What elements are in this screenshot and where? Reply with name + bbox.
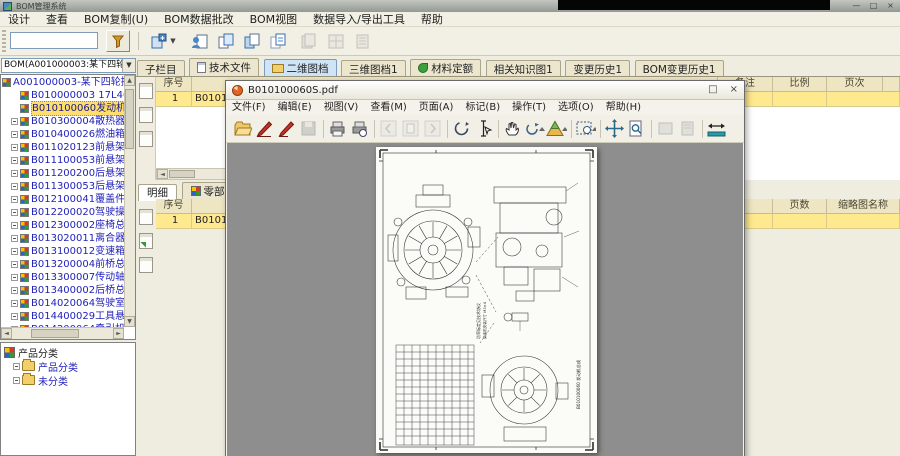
- drawing-sheet: 功率标定见技术协议 柴油机安装尺寸 M3×4 B010100060 发动机总成: [376, 147, 597, 453]
- tree-item[interactable]: B013020011离合器总成 1: [1, 232, 124, 245]
- close-button[interactable]: ×: [884, 1, 897, 11]
- tree-item[interactable]: B013300007传动轴总成 1: [1, 271, 124, 284]
- bom-icon: [20, 143, 29, 152]
- save-disabled-icon[interactable]: [298, 118, 319, 139]
- sign-pen-alt-icon[interactable]: [276, 118, 297, 139]
- tree-toggle-icon[interactable]: [11, 183, 18, 190]
- bom-select[interactable]: BOM(A001000003:某下四轮拖… ▼: [1, 58, 136, 73]
- bom-icon: [20, 286, 29, 295]
- tree-vertical-scrollbar[interactable]: ▲ ▼: [124, 75, 135, 327]
- tree-item[interactable]: B011020123前悬架 1: [1, 141, 124, 154]
- tab-label: 三维图档1: [349, 62, 398, 77]
- tree-toggle-icon[interactable]: [11, 157, 18, 164]
- rotate-90-icon[interactable]: [524, 118, 545, 139]
- pdf-menu-item[interactable]: 标记(B): [459, 100, 506, 115]
- tree-toggle-icon[interactable]: [11, 131, 18, 138]
- column-header: 比例: [773, 77, 827, 92]
- bom-icon: [20, 104, 29, 113]
- tree-toggle-icon[interactable]: [11, 248, 18, 255]
- doc-action-icon[interactable]: [139, 257, 153, 273]
- bom-select-value: BOM(A001000003:某下四轮拖…: [2, 59, 122, 72]
- category-grid-icon: [4, 347, 15, 358]
- menu-bar: 设计查看BOM复制(U)BOM数据批改BOM视图数据导入/导出工具帮助: [0, 12, 900, 27]
- tab-icon: [272, 64, 284, 73]
- copy-node-icon[interactable]: [188, 30, 212, 52]
- scroll-right-icon[interactable]: ►: [113, 328, 124, 339]
- tree-item[interactable]: B010100060发动机总成 1: [1, 102, 124, 115]
- tree-toggle-icon[interactable]: [11, 274, 18, 281]
- import-doc-icon[interactable]: [139, 233, 153, 249]
- redacted-strip: [558, 0, 830, 10]
- menu-item[interactable]: 设计: [0, 12, 38, 27]
- tree-item[interactable]: B012300002座椅总成 1: [1, 219, 124, 232]
- tree-toggle-icon[interactable]: [11, 196, 18, 203]
- tree-toggle-icon[interactable]: [11, 313, 18, 320]
- svg-text:柴油机安装尺寸 M3×4: 柴油机安装尺寸 M3×4: [482, 301, 487, 339]
- category-folder[interactable]: 未分类: [1, 373, 135, 387]
- column-header: 序号: [156, 77, 192, 92]
- tree-item[interactable]: B011200200后悬架 1: [1, 167, 124, 180]
- pdf-close-button[interactable]: ×: [730, 83, 738, 97]
- bom-icon: [20, 156, 29, 165]
- copy-pages-icon[interactable]: [240, 30, 264, 52]
- tree-toggle-icon[interactable]: [11, 170, 18, 177]
- tab-label: 明细: [147, 185, 168, 200]
- maximize-button[interactable]: □: [867, 1, 880, 11]
- scroll-left-icon[interactable]: ◄: [157, 169, 168, 179]
- print-preview-icon[interactable]: [349, 118, 370, 139]
- column-header: 序号: [156, 199, 192, 214]
- upper-table-hscrollbar[interactable]: ◄: [156, 168, 234, 180]
- tree-root[interactable]: A001000003-某下四轮拖拉机总成-(1: [1, 76, 124, 89]
- tab-label: 材料定额: [431, 61, 473, 76]
- bom-icon: [20, 247, 29, 256]
- tree-toggle-icon[interactable]: [11, 222, 18, 229]
- sign-pen-icon[interactable]: [254, 118, 275, 139]
- column-header: 页数: [773, 199, 827, 214]
- tab-label: 相关知识图1: [494, 62, 553, 77]
- pdf-app-icon: [232, 85, 243, 96]
- column-header: [883, 77, 900, 92]
- pdf-menu-item[interactable]: 操作(T): [506, 100, 552, 115]
- tab-label: 二维图档: [287, 61, 329, 76]
- tree-item[interactable]: B013100012变速箱总成 1: [1, 245, 124, 258]
- page-next-disabled-icon[interactable]: [422, 118, 443, 139]
- menu-item[interactable]: 数据导入/导出工具: [305, 12, 413, 27]
- filter-funnel-icon[interactable]: [106, 30, 130, 52]
- bom-icon: [20, 234, 29, 243]
- scroll-down-icon[interactable]: ▼: [124, 316, 135, 327]
- tree-toggle-icon[interactable]: [11, 209, 18, 216]
- chevron-down-icon[interactable]: ▼: [122, 59, 135, 72]
- bom-icon: [20, 312, 29, 321]
- zoom-preview-icon[interactable]: [626, 118, 647, 139]
- pdf-menu-item[interactable]: 文件(F): [226, 100, 272, 115]
- tree-item[interactable]: B010300004散热器总成 1: [1, 115, 124, 128]
- pdf-canvas[interactable]: 功率标定见技术协议 柴油机安装尺寸 M3×4 B010100060 发动机总成: [227, 143, 743, 456]
- tree-item[interactable]: B013400002后桥总成 1: [1, 284, 124, 297]
- main-toolbar: ▼: [0, 27, 900, 56]
- upper-action-strip: [136, 77, 156, 180]
- tree-horizontal-scrollbar[interactable]: ◄ ►: [1, 327, 124, 339]
- tab-icon: [418, 63, 428, 73]
- menu-item[interactable]: 帮助: [413, 12, 451, 27]
- tab-label: 变更历史1: [573, 62, 622, 77]
- column-header: 页次: [827, 77, 883, 92]
- tree-toggle-icon[interactable]: [11, 261, 18, 268]
- pdf-maximize-button[interactable]: □: [708, 83, 717, 97]
- hand-tool-icon[interactable]: [502, 118, 523, 139]
- paste-disabled-icon[interactable]: [296, 30, 320, 52]
- pdf-viewer-window: B010100060S.pdf □ × 文件(F)编辑(E)视图(V)查看(M)…: [225, 80, 745, 456]
- bom-new-dropdown-icon[interactable]: ▼: [146, 30, 180, 52]
- tab-icon: [197, 62, 206, 73]
- stamp-disabled-icon[interactable]: [655, 118, 676, 139]
- tree-item[interactable]: B013200004前桥总成 1: [1, 258, 124, 271]
- fit-width-icon[interactable]: [706, 118, 727, 139]
- scroll-up-icon[interactable]: ▲: [124, 75, 135, 86]
- lower-tab[interactable]: 明细: [138, 184, 177, 201]
- bom-icon: [20, 260, 29, 269]
- bom-icon: [20, 299, 29, 308]
- fit-page-icon[interactable]: [604, 118, 625, 139]
- pdf-menu-item[interactable]: 选项(O): [552, 100, 600, 115]
- tab-label: 子栏目: [145, 62, 177, 77]
- column-header: 缩略图名称: [827, 199, 900, 214]
- menu-item[interactable]: BOM视图: [242, 12, 306, 27]
- tree-toggle-icon[interactable]: [11, 287, 18, 294]
- tree-item[interactable]: B010400026燃油箱总成 1: [1, 128, 124, 141]
- bom-icon: [20, 91, 29, 100]
- main-tab[interactable]: 材料定额: [410, 59, 481, 77]
- folder-icon: [22, 375, 35, 385]
- engineering-drawing: 功率标定见技术协议 柴油机安装尺寸 M3×4 B010100060 发动机总成: [376, 147, 597, 453]
- pdf-menu-item[interactable]: 编辑(E): [272, 100, 318, 115]
- main-tab[interactable]: 技术文件: [189, 58, 259, 76]
- toolbar-grip[interactable]: [2, 30, 6, 52]
- pdf-menu-item[interactable]: 视图(V): [318, 100, 365, 115]
- doc-action-icon[interactable]: [139, 83, 153, 99]
- pdf-title: B010100060S.pdf: [248, 85, 338, 96]
- tree-toggle-icon[interactable]: [11, 235, 18, 242]
- page-prev-disabled-icon[interactable]: [378, 118, 399, 139]
- bom-icon: [20, 130, 29, 139]
- main-tab-bar: 子栏目 技术文件 二维图档 三维图档1 材料定额 相关知识图1 变更历史1: [137, 58, 725, 77]
- tree-item[interactable]: B014400029工具悬置附件1: [1, 310, 124, 323]
- bom-icon: [20, 273, 29, 282]
- category-panel: 产品分类 产品分类 未分类: [0, 342, 136, 456]
- doc-action-icon[interactable]: [139, 131, 153, 147]
- pdf-menu-item[interactable]: 页面(A): [413, 100, 460, 115]
- tree-toggle-icon[interactable]: [11, 118, 18, 125]
- bom-icon: [20, 182, 29, 191]
- category-folder[interactable]: 产品分类: [1, 359, 135, 373]
- bom-icon: [20, 117, 29, 126]
- bom-tree-panel: A001000003-某下四轮拖拉机总成-(1 B010000003 17L40…: [0, 74, 136, 340]
- page-current-disabled-icon[interactable]: [400, 118, 421, 139]
- tree-item[interactable]: B012200020驾驶操纵总成 1: [1, 206, 124, 219]
- tree-item[interactable]: B014020064驾驶室总成 1: [1, 297, 124, 310]
- minimize-button[interactable]: —: [850, 1, 863, 11]
- tab-label: BOM变更历史1: [643, 62, 716, 77]
- bom-icon: [20, 195, 29, 204]
- bom-icon: [20, 169, 29, 178]
- measure-prism-icon[interactable]: [546, 118, 567, 139]
- tree-toggle-icon[interactable]: [13, 363, 20, 370]
- tree-toggle-icon[interactable]: [13, 377, 20, 384]
- copy-branch-icon[interactable]: [266, 30, 290, 52]
- main-tab[interactable]: 二维图档: [264, 59, 337, 77]
- svg-text:B010100060 发动机总成: B010100060 发动机总成: [575, 360, 582, 409]
- tree-item[interactable]: B012100041覆盖件附件-1: [1, 193, 124, 206]
- export-disabled-icon[interactable]: [350, 30, 374, 52]
- report-disabled-icon[interactable]: [324, 30, 348, 52]
- text-select-icon[interactable]: [473, 118, 494, 139]
- tree-toggle-icon[interactable]: [11, 300, 18, 307]
- table-cell-seq[interactable]: 1: [156, 92, 192, 107]
- scroll-left-icon[interactable]: ◄: [1, 328, 12, 339]
- rotate-view-icon[interactable]: [451, 118, 472, 139]
- bom-icon: [2, 78, 11, 87]
- menu-item[interactable]: BOM复制(U): [76, 12, 156, 27]
- tree-item[interactable]: B011300053后悬架附件-1: [1, 180, 124, 193]
- folder-icon: [22, 361, 35, 371]
- pdf-toolbar: [226, 115, 744, 143]
- copy-page-icon[interactable]: [214, 30, 238, 52]
- tree-item[interactable]: B011100053前悬架附件-1: [1, 154, 124, 167]
- tab-icon: [191, 186, 201, 196]
- attach-disabled-icon[interactable]: [677, 118, 698, 139]
- app-title: BOM管理系统: [16, 1, 67, 12]
- doc-action-icon[interactable]: [139, 107, 153, 123]
- print-icon[interactable]: [327, 118, 348, 139]
- category-root[interactable]: 产品分类: [1, 345, 135, 359]
- pdf-menu-item[interactable]: 查看(M): [364, 100, 412, 115]
- lower-action-strip: [136, 199, 156, 309]
- pdf-menu-item[interactable]: 帮助(H): [600, 100, 647, 115]
- tree-toggle-icon[interactable]: [11, 144, 18, 151]
- bom-icon: [20, 208, 29, 217]
- pdf-menu-bar: 文件(F)编辑(E)视图(V)查看(M)页面(A)标记(B)操作(T)选项(O)…: [226, 100, 744, 115]
- select-zoom-icon[interactable]: [575, 118, 596, 139]
- new-doc-icon[interactable]: [139, 209, 153, 225]
- tab-label: 技术文件: [209, 60, 251, 75]
- menu-item[interactable]: 查看: [38, 12, 76, 27]
- search-input[interactable]: [10, 32, 98, 49]
- bom-icon: [20, 221, 29, 230]
- pdf-title-bar[interactable]: B010100060S.pdf □ ×: [226, 81, 744, 100]
- svg-text:功率标定见技术协议: 功率标定见技术协议: [475, 303, 481, 339]
- app-icon: [3, 2, 12, 11]
- open-folder-icon[interactable]: [232, 118, 253, 139]
- menu-item[interactable]: BOM数据批改: [156, 12, 242, 27]
- table-cell-seq[interactable]: 1: [156, 214, 192, 229]
